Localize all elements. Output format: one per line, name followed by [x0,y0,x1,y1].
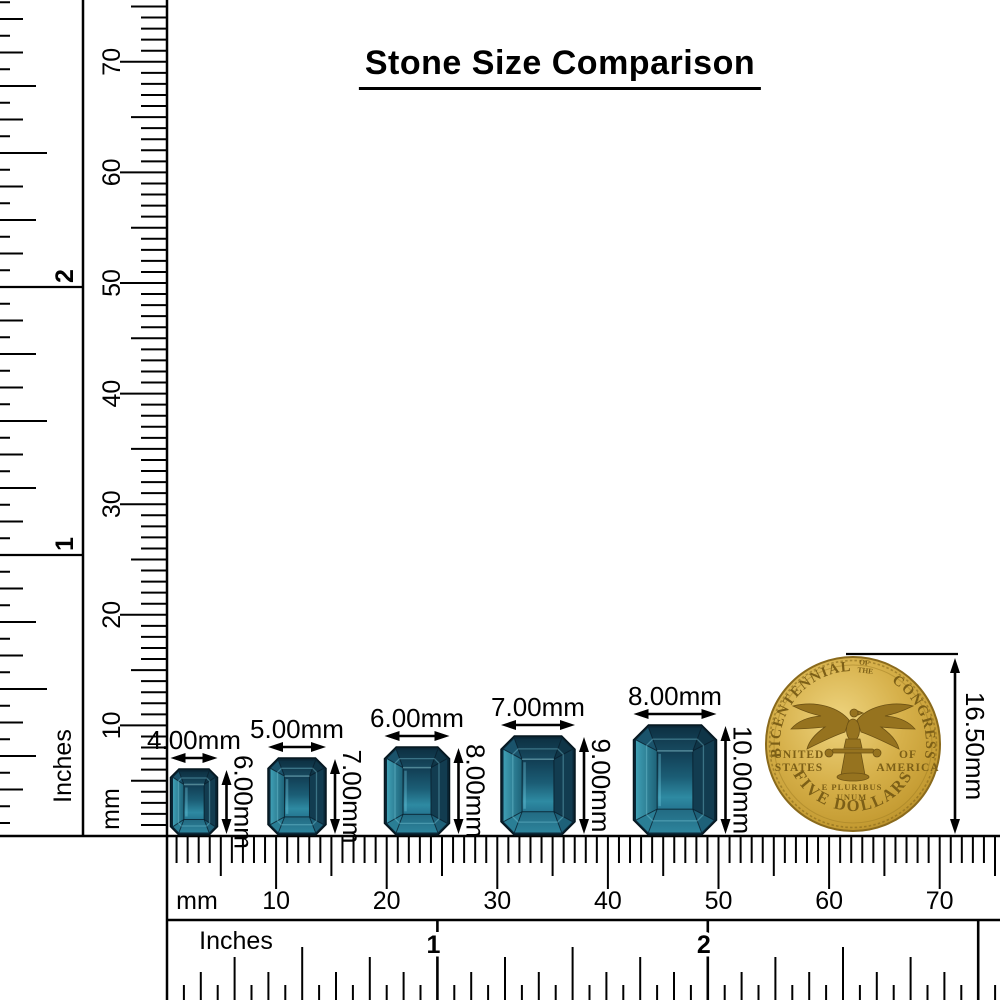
left-mm-ruler: 10203040506070mm [97,7,167,830]
left-inch-label: 1 [51,537,79,551]
bottom-inches-ruler: 12Inches [184,920,995,1000]
bottom-inches-unit-label: Inches [199,927,273,955]
stone-height-label: 9.00mm [586,739,616,833]
bottom-mm-label: 20 [373,887,401,915]
stone-gem [171,769,218,835]
scene-svg: 12Inches10203040506070mm10203040506070mm… [0,0,1000,1000]
coin-diameter-label: 16.50mm [960,692,990,800]
stone-7x9mm: 7.00mm9.00mm [491,692,616,835]
stone-size-comparison-diagram: Stone Size Comparison 12Inches1020304050… [0,0,1000,1000]
bottom-mm-label: 30 [483,887,511,915]
coin-of: OF [899,749,917,761]
left-inch-label: 2 [51,269,79,283]
coin-motto-1: E PLURIBUS [822,782,883,792]
stone-height-label: 8.00mm [461,744,491,838]
bottom-inch-label: 2 [697,931,711,959]
stone-width-label: 5.00mm [250,714,344,744]
bottom-mm-label: 60 [815,887,843,915]
bottom-mm-label: 40 [594,887,622,915]
stone-4x6mm: 4.00mm6.00mm [147,725,258,849]
left-mm-label: 10 [98,711,126,739]
bottom-mm-label: 10 [262,887,290,915]
stone-8x10mm: 8.00mm10.00mm [628,681,757,835]
stone-height-label: 6.00mm [229,755,259,849]
left-mm-unit-label: mm [97,788,125,830]
five-dollar-coin: BICENTENNIALCONGRESSOFTHEUNITEDSTATESOFA… [766,657,940,831]
left-inches-unit-label: Inches [49,729,77,803]
stone-width-label: 4.00mm [147,725,241,755]
left-mm-label: 50 [98,269,126,297]
stone-gem [268,758,326,835]
stone-gem [385,747,450,835]
stone-6x8mm: 6.00mm8.00mm [370,703,490,838]
left-mm-label: 30 [98,490,126,518]
bottom-mm-ruler: 10203040506070mm [176,837,995,915]
bottom-mm-label: 70 [926,887,954,915]
coin-united: UNITED [774,749,825,761]
bottom-mm-label: 50 [705,887,733,915]
bottom-mm-unit-label: mm [176,887,218,915]
stone-gem [634,725,717,835]
stone-height-label: 10.00mm [728,726,758,834]
left-mm-label: 60 [98,158,126,186]
coin-legend-the: THE [857,665,874,676]
stone-width-label: 8.00mm [628,681,722,711]
stone-5x7mm: 5.00mm7.00mm [250,714,367,843]
bottom-inch-label: 1 [426,931,440,959]
left-mm-label: 20 [98,601,126,629]
left-inches-ruler: 12Inches [0,2,83,823]
stone-width-label: 7.00mm [491,692,585,722]
stone-width-label: 6.00mm [370,703,464,733]
left-mm-label: 40 [98,380,126,408]
left-mm-label: 70 [98,48,126,76]
stone-height-label: 7.00mm [337,750,367,844]
stone-gem [501,736,575,835]
